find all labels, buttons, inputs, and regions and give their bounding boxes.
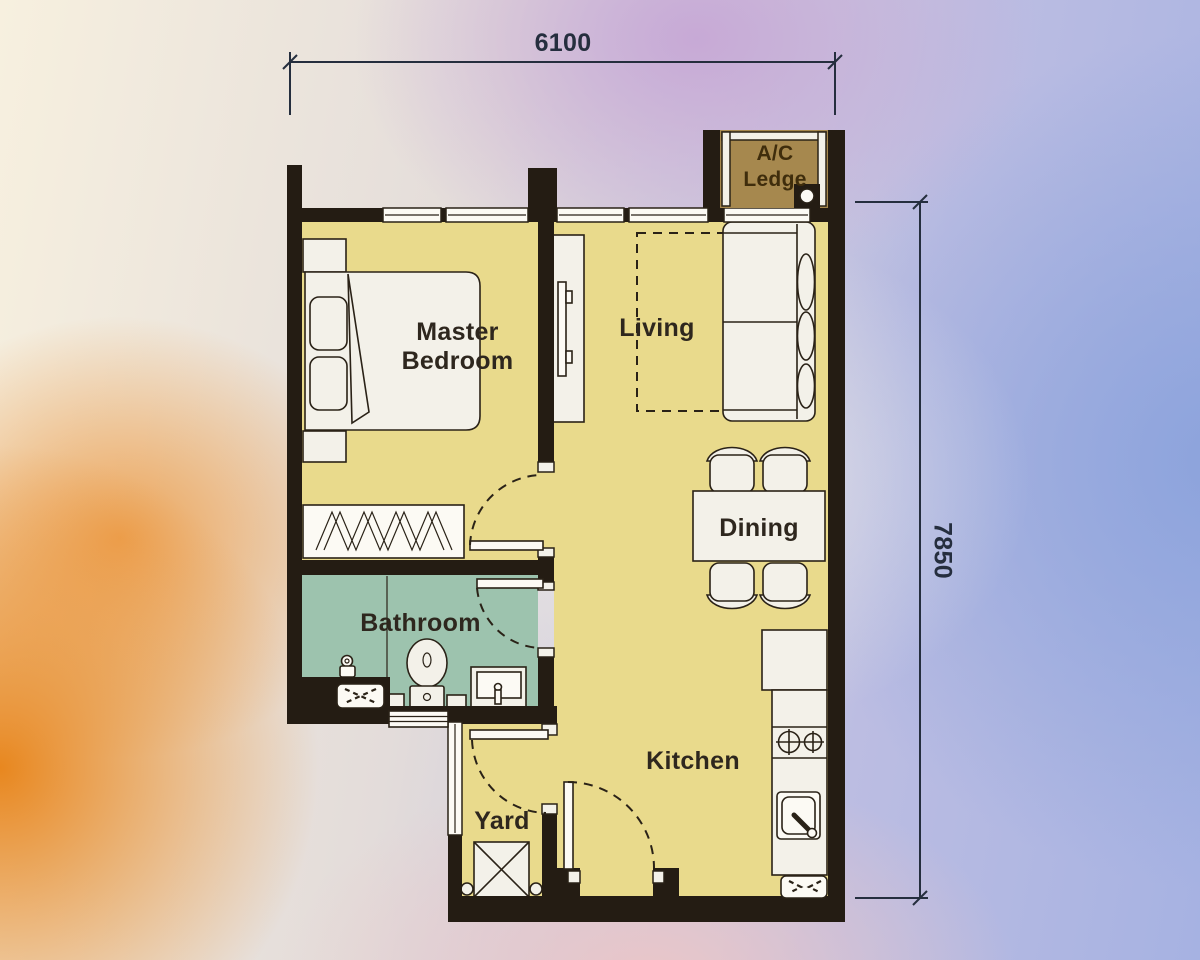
dimension-width-label: 6100 <box>513 29 613 58</box>
door-leaf-bedroom <box>470 541 543 550</box>
dining-chair <box>763 563 807 601</box>
back-cushion <box>798 364 815 408</box>
wall-segment <box>810 208 830 222</box>
room-label-yard: Yard <box>447 807 557 836</box>
back-cushion <box>798 254 815 310</box>
dining-chair <box>710 563 754 601</box>
room-label-master-bedroom: Master Bedroom <box>375 318 540 376</box>
bathroom-threshold <box>389 711 448 727</box>
wall-yard-left <box>448 835 462 896</box>
wall-bottom <box>448 896 845 922</box>
refrigerator <box>762 630 827 690</box>
floor-plan-drawing <box>0 0 1200 960</box>
wall-left <box>287 165 302 722</box>
shower-valve-icon <box>340 656 355 678</box>
floor-trap <box>389 694 404 708</box>
kitchen-sink <box>777 792 820 839</box>
wall-bathroom-top <box>287 560 554 575</box>
wardrobe-rail <box>303 505 464 558</box>
pillow <box>310 297 347 350</box>
nightstand-bottom <box>303 431 346 462</box>
washer-unit <box>474 842 529 897</box>
dining-chair <box>763 455 807 493</box>
room-label-bathroom: Bathroom <box>338 609 503 638</box>
vanity-basin <box>471 667 526 709</box>
dimension-line-right <box>855 195 928 905</box>
pipe-point <box>461 883 473 895</box>
kitchen-fixtures <box>762 630 827 875</box>
master-bedroom-fixtures <box>303 239 480 558</box>
door-leaf-entrance <box>564 782 573 869</box>
wall-cap <box>653 871 664 883</box>
toilet <box>407 639 447 708</box>
wall-cap <box>538 462 554 472</box>
back-cushion <box>798 312 815 360</box>
wall-right <box>828 130 845 922</box>
wall-segment <box>302 208 384 222</box>
pillow <box>310 357 347 410</box>
room-label-living: Living <box>592 314 722 343</box>
door-leaf-bathroom <box>477 579 543 588</box>
room-label-kitchen: Kitchen <box>628 747 758 776</box>
sofa <box>723 222 815 421</box>
ac-rail <box>722 132 826 140</box>
room-label-dining: Dining <box>694 514 824 543</box>
dining-chair <box>710 455 754 493</box>
floor-bedroom-door-gap <box>538 471 554 548</box>
wall-cap <box>538 648 554 657</box>
nightstand-top <box>303 239 346 272</box>
kitchen-counter <box>772 690 827 875</box>
wardrobe-body <box>303 505 464 558</box>
floor-plan-image: Master Bedroom Living Dining Kitchen Bat… <box>0 0 1200 960</box>
louvre-vent-kitchen <box>781 876 827 898</box>
wall-column <box>528 168 557 222</box>
room-label-ac-ledge: A/C Ledge <box>724 141 826 192</box>
door-leaf-yard <box>470 730 548 739</box>
tv-console <box>552 235 584 422</box>
louvre-vent-bathroom <box>337 684 384 708</box>
dimension-line-top <box>283 52 842 115</box>
wall-cap <box>568 871 580 883</box>
tv <box>558 282 566 376</box>
tv-bracket <box>566 351 572 363</box>
dimension-height-label: 7850 <box>928 506 957 596</box>
pipe-point <box>530 883 542 895</box>
wall-bedroom-living-divider <box>538 222 554 471</box>
tv-bracket <box>566 291 572 303</box>
wall-segment <box>708 208 724 222</box>
